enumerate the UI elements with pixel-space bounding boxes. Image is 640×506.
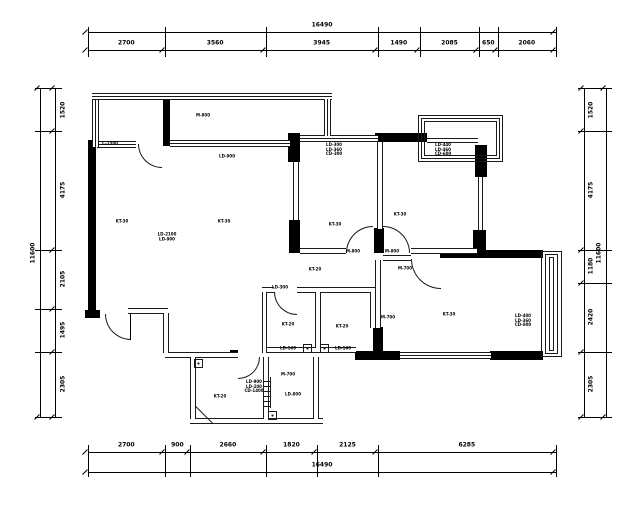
dim-tick [82, 469, 88, 475]
dimension-value: 1495 [60, 322, 67, 339]
partition-wall [262, 292, 267, 353]
extension-line [88, 445, 89, 477]
room-label: KT-30 [394, 213, 406, 218]
window [170, 140, 290, 147]
room-label: C-1500 [102, 142, 118, 147]
dimension-line [88, 452, 556, 453]
dimension-value: 650 [482, 40, 495, 47]
dimension-total: 11600 [30, 242, 37, 263]
dimension-value: 1520 [60, 101, 67, 118]
dimension-line [88, 32, 556, 33]
room-label: KT-30 [218, 220, 230, 225]
dimension-value: 1490 [390, 40, 407, 47]
partition-wall [293, 162, 299, 220]
room-label: LD-800 [285, 393, 301, 398]
dimension-line [584, 88, 585, 417]
dimension-line [55, 88, 56, 417]
wall-segment [163, 99, 170, 146]
dimension-line [606, 88, 607, 417]
partition-wall [411, 248, 477, 254]
dimension-value: 900 [171, 442, 184, 449]
room-label: LD-300 [272, 286, 288, 291]
dimension-value: 2700 [118, 40, 135, 47]
room-label: M-700 [381, 316, 395, 321]
room-label: LD-140 [280, 347, 296, 352]
dimension-value: 2700 [118, 442, 135, 449]
dimension-value: 2125 [339, 442, 356, 449]
room-label: M-800 [196, 114, 210, 119]
extension-line [578, 131, 612, 132]
wall-segment [88, 140, 96, 312]
room-label: M-700 [281, 373, 295, 378]
room-label: M-700 [398, 267, 412, 272]
fixture-symbol [303, 344, 312, 353]
room-label: LD-300 LD-360 CD-300 [326, 143, 342, 157]
dimension-value: 4175 [60, 182, 67, 199]
extension-line [165, 27, 166, 57]
dimension-value: 3945 [313, 40, 330, 47]
dimension-value: 2085 [441, 40, 458, 47]
door-arc [105, 314, 131, 340]
room-label: LD-2100 LD-900 [158, 232, 177, 241]
dimension-value: 6285 [458, 442, 475, 449]
door-arc [238, 357, 260, 379]
window [92, 100, 99, 147]
dim-tick [82, 29, 88, 35]
room-label: LD-140 [335, 347, 351, 352]
dimension-value: 3560 [207, 40, 224, 47]
extension-line [479, 27, 480, 57]
partition-wall [370, 292, 376, 328]
door-arc [138, 144, 162, 168]
extension-line [35, 250, 62, 251]
fixture-symbol [194, 359, 203, 368]
dimension-value: 1180 [588, 258, 595, 275]
extension-line [190, 445, 191, 477]
partition-wall [377, 142, 383, 229]
wall-segment [355, 351, 400, 360]
partition-wall [163, 313, 169, 353]
room-label: KT-30 [116, 220, 128, 225]
window [324, 99, 331, 136]
dim-tick [82, 47, 88, 53]
room-label: KT-30 [329, 223, 341, 228]
partition-wall [128, 308, 168, 314]
dimension-line [88, 472, 556, 473]
extension-line [578, 88, 612, 89]
floor-plan-canvas: M-800C-1500LD-900KT-30KT-30LD-2100 LD-90… [0, 0, 640, 506]
extension-line [578, 352, 612, 353]
room-label: KT-30 [443, 313, 455, 318]
dimension-value: 1520 [588, 101, 595, 118]
dimension-value: 2060 [518, 40, 535, 47]
room-label: KT-20 [309, 268, 321, 273]
partition-wall [300, 248, 346, 254]
dimension-value: 1820 [283, 442, 300, 449]
wall-segment [490, 351, 543, 360]
window [300, 135, 378, 142]
room-label: LD-440 LD-460 CD-600 [435, 143, 451, 157]
dimension-value: 2660 [220, 442, 237, 449]
wall-segment [289, 220, 300, 253]
partition-wall [315, 292, 321, 348]
extension-line [378, 27, 379, 57]
room-label: KT-20 [214, 395, 226, 400]
fixture-symbol [268, 411, 277, 420]
dimension-total: 16490 [312, 462, 333, 469]
room-label: KT-20 [336, 325, 348, 330]
room-label: LD-400 LD-360 CD-800 [515, 314, 531, 328]
dim-tick [82, 449, 88, 455]
door-leaf [130, 314, 131, 340]
room-label: LD-900 [219, 155, 235, 160]
room-label: M-800 [385, 250, 399, 255]
partition-wall [297, 287, 375, 293]
hatch-window [263, 377, 271, 408]
wall-segment [85, 310, 100, 318]
extension-line [556, 27, 557, 57]
dimension-line [88, 50, 556, 51]
partition-wall [313, 357, 319, 419]
wall-segment [373, 327, 383, 353]
extension-line [578, 283, 612, 284]
dimension-value: 2420 [588, 309, 595, 326]
room-label: LD-900 LD-200 CD-1400 [244, 380, 263, 394]
window [400, 352, 491, 359]
extension-line [578, 417, 612, 418]
extension-line [420, 27, 421, 57]
dimension-total: 16490 [312, 22, 333, 29]
extension-line [266, 27, 267, 57]
fixture-symbol [320, 344, 329, 353]
bay-window [549, 257, 554, 351]
extension-line [498, 27, 499, 57]
door-arc [274, 292, 297, 315]
room-label: KT-20 [282, 323, 294, 328]
window [92, 93, 332, 100]
dimension-line [40, 88, 41, 417]
room-label: M-800 [346, 250, 360, 255]
dimension-value: 2305 [588, 376, 595, 393]
partition-wall [383, 255, 411, 261]
partition-wall [165, 352, 238, 358]
partition-wall [478, 177, 483, 230]
dimension-value: 2105 [60, 271, 67, 288]
door-arc [411, 259, 441, 289]
extension-line [556, 445, 557, 477]
wall-segment [288, 133, 300, 162]
extension-line [88, 27, 89, 57]
dimension-value: 2305 [60, 376, 67, 393]
extension-line [35, 352, 62, 353]
dimension-value: 4175 [588, 182, 595, 199]
dimension-total: 11600 [596, 242, 603, 263]
